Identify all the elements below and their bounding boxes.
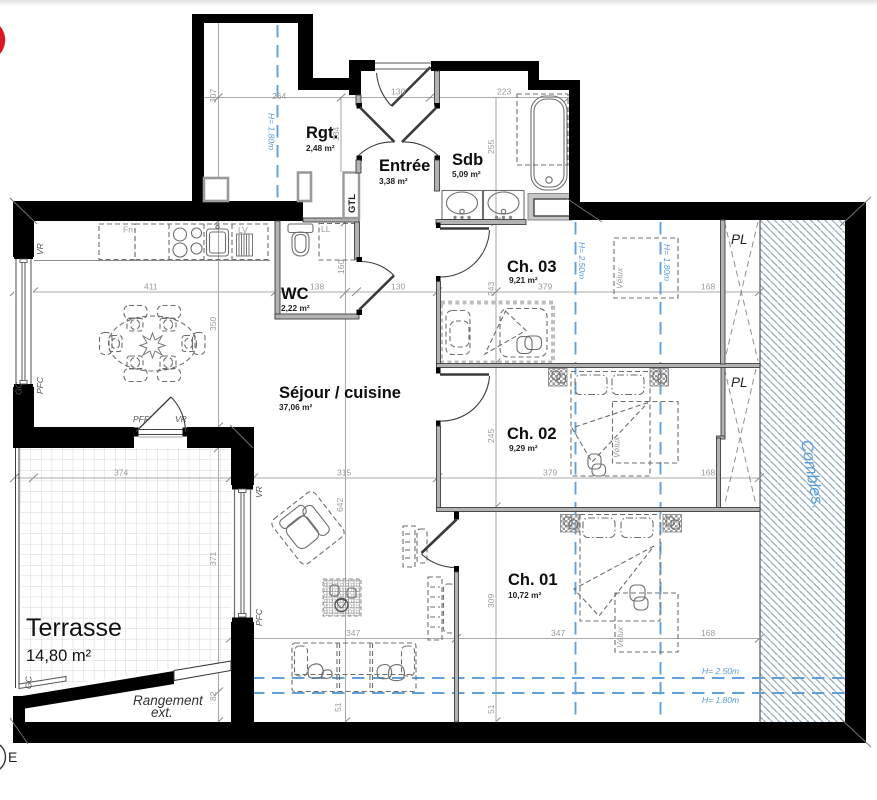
svg-text:Ch. 01: Ch. 01 [508, 571, 558, 589]
svg-text:9,29 m²: 9,29 m² [509, 443, 538, 453]
svg-text:GC: GC [24, 675, 34, 689]
svg-text:374: 374 [114, 468, 128, 478]
svg-text:H= 1.80m: H= 1.80m [702, 695, 739, 705]
svg-text:255: 255 [486, 140, 496, 154]
svg-text:243: 243 [486, 282, 496, 296]
svg-text:168: 168 [701, 468, 715, 478]
svg-text:37,06 m²: 37,06 m² [279, 402, 312, 412]
svg-text:14,80 m²: 14,80 m² [26, 647, 92, 665]
svg-text:223: 223 [497, 87, 511, 97]
svg-text:Vélux: Vélux [615, 267, 625, 289]
svg-text:Terrasse: Terrasse [26, 614, 122, 642]
svg-text:379: 379 [538, 282, 552, 292]
svg-text:LL: LL [321, 224, 331, 234]
svg-text:Entrée: Entrée [379, 157, 430, 175]
svg-text:5,09 m²: 5,09 m² [452, 169, 481, 179]
svg-text:82: 82 [208, 691, 218, 701]
svg-text:264: 264 [272, 91, 286, 101]
svg-text:Séjour / cuisine: Séjour / cuisine [279, 384, 401, 402]
svg-text:Vélux: Vélux [612, 436, 622, 458]
svg-text:307: 307 [208, 89, 218, 103]
svg-text:VR: VR [35, 243, 45, 255]
svg-text:309: 309 [486, 594, 496, 608]
svg-text:2,48 m²: 2,48 m² [306, 143, 335, 153]
svg-text:PFC: PFC [35, 376, 45, 394]
svg-text:51: 51 [486, 704, 496, 714]
svg-text:134: 134 [331, 127, 341, 141]
svg-text:3,38 m²: 3,38 m² [379, 176, 408, 186]
svg-text:E: E [8, 749, 17, 765]
svg-text:PL: PL [731, 232, 748, 247]
svg-text:H= 1.80m: H= 1.80m [662, 244, 672, 281]
svg-text:PFC: PFC [254, 608, 264, 626]
svg-text:H= 1.80m: H= 1.80m [267, 113, 277, 150]
svg-text:315: 315 [337, 468, 351, 478]
svg-text:51: 51 [333, 702, 343, 712]
svg-text:PFF: PFF [133, 414, 150, 424]
svg-text:168: 168 [701, 282, 715, 292]
svg-text:347: 347 [346, 628, 360, 638]
svg-text:10,72 m²: 10,72 m² [508, 590, 541, 600]
svg-text:371: 371 [208, 552, 218, 566]
svg-text:347: 347 [551, 628, 565, 638]
svg-text:130: 130 [391, 282, 405, 292]
svg-text:245: 245 [486, 429, 496, 443]
svg-text:ext.: ext. [151, 705, 173, 720]
svg-text:379: 379 [543, 468, 557, 478]
svg-text:Sdb: Sdb [452, 151, 483, 169]
svg-text:GC: GC [14, 381, 24, 395]
svg-text:Ch. 02: Ch. 02 [507, 425, 557, 443]
svg-text:WC: WC [281, 285, 309, 303]
svg-text:168: 168 [701, 628, 715, 638]
svg-text:160: 160 [336, 260, 346, 274]
svg-text:Ch. 03: Ch. 03 [507, 258, 557, 276]
svg-text:VR: VR [175, 414, 187, 424]
svg-text:GTL: GTL [347, 194, 358, 213]
svg-text:9,21 m²: 9,21 m² [509, 275, 538, 285]
svg-text:H= 2.50m: H= 2.50m [702, 666, 739, 676]
svg-text:Fri: Fri [123, 225, 133, 235]
svg-text:Vélux: Vélux [615, 626, 625, 648]
svg-text:H= 2.50m: H= 2.50m [577, 242, 587, 279]
svg-text:2,22 m²: 2,22 m² [281, 303, 310, 313]
svg-text:138: 138 [310, 282, 324, 292]
svg-text:411: 411 [144, 282, 158, 292]
svg-text:350: 350 [208, 317, 218, 331]
svg-text:642: 642 [335, 498, 345, 512]
svg-text:130: 130 [391, 87, 405, 97]
svg-text:VR: VR [254, 486, 264, 498]
svg-text:PL: PL [731, 375, 748, 390]
